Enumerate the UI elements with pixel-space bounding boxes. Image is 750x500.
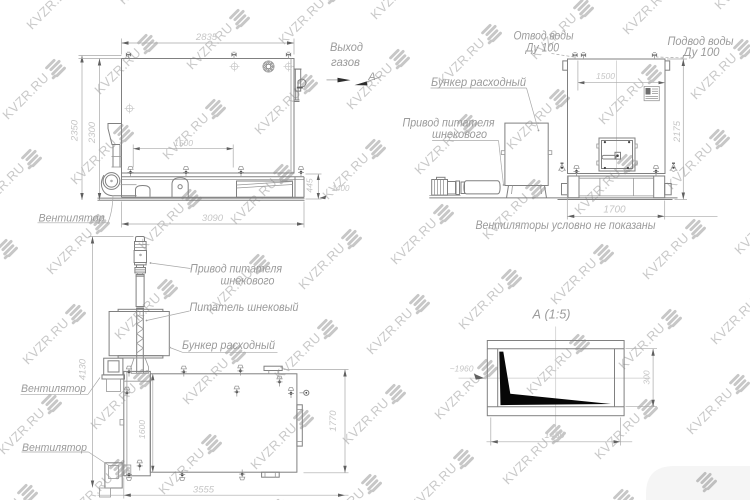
- svg-text:2300: 2300: [87, 121, 98, 144]
- svg-text:1400: 1400: [332, 184, 350, 193]
- svg-text:3555: 3555: [193, 485, 215, 496]
- svg-text:Бункер расходный: Бункер расходный: [431, 75, 526, 89]
- svg-text:шнекового: шнекового: [221, 274, 275, 288]
- svg-text:2835: 2835: [195, 32, 218, 43]
- svg-text:4130: 4130: [78, 358, 89, 380]
- svg-text:А (1:5): А (1:5): [532, 307, 571, 322]
- svg-text:3090: 3090: [202, 213, 224, 224]
- svg-text:1480: 1480: [544, 430, 564, 440]
- svg-text:Отвод воды: Отвод воды: [514, 31, 574, 43]
- svg-text:Ду 100: Ду 100: [682, 47, 721, 59]
- svg-text:Бункер расходный: Бункер расходный: [182, 338, 275, 352]
- svg-text:2350: 2350: [70, 119, 81, 142]
- svg-text:Вентилятор: Вентилятор: [21, 383, 86, 395]
- svg-text:1770: 1770: [328, 410, 339, 432]
- svg-text:1700: 1700: [603, 205, 626, 216]
- svg-text:300: 300: [642, 370, 652, 384]
- svg-text:445: 445: [305, 178, 315, 192]
- svg-text:1500: 1500: [174, 138, 193, 148]
- svg-text:Выход: Выход: [330, 40, 363, 54]
- svg-text:2175: 2175: [672, 120, 683, 143]
- svg-text:~1960: ~1960: [450, 364, 474, 374]
- svg-text:1600: 1600: [137, 420, 147, 439]
- svg-text:Ду 100: Ду 100: [524, 43, 559, 55]
- svg-text:шнекового: шнекового: [432, 127, 487, 141]
- svg-text:1500: 1500: [596, 71, 615, 81]
- svg-text:А: А: [367, 71, 375, 83]
- svg-text:газов: газов: [331, 55, 360, 69]
- svg-text:Питатель шнековый: Питатель шнековый: [190, 300, 299, 314]
- svg-text:Вентиляторы условно не показан: Вентиляторы условно не показаны: [476, 220, 656, 232]
